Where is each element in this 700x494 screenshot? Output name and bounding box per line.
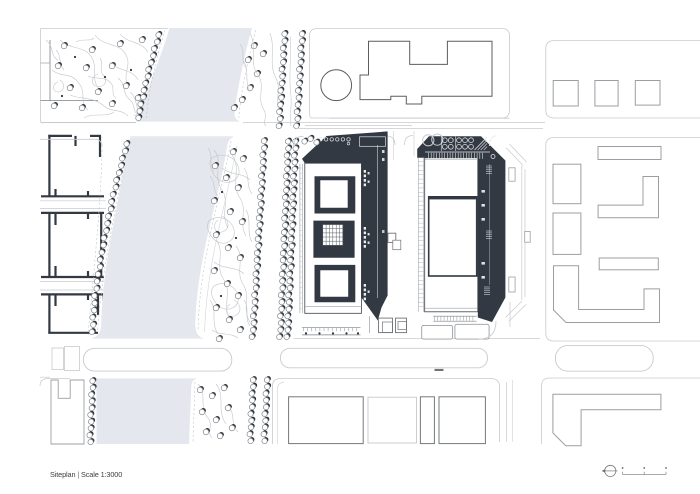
svg-text:Siteplan | Scale 1:3000: Siteplan | Scale 1:3000 <box>50 470 122 479</box>
